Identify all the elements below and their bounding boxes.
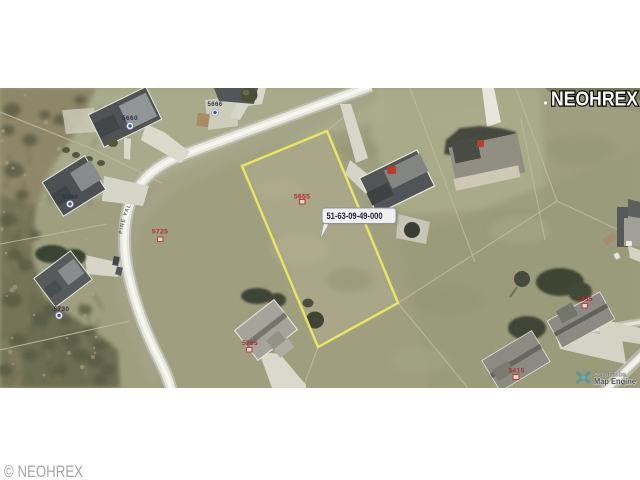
svg-text:© NEOHREX: © NEOHREX xyxy=(4,463,83,480)
